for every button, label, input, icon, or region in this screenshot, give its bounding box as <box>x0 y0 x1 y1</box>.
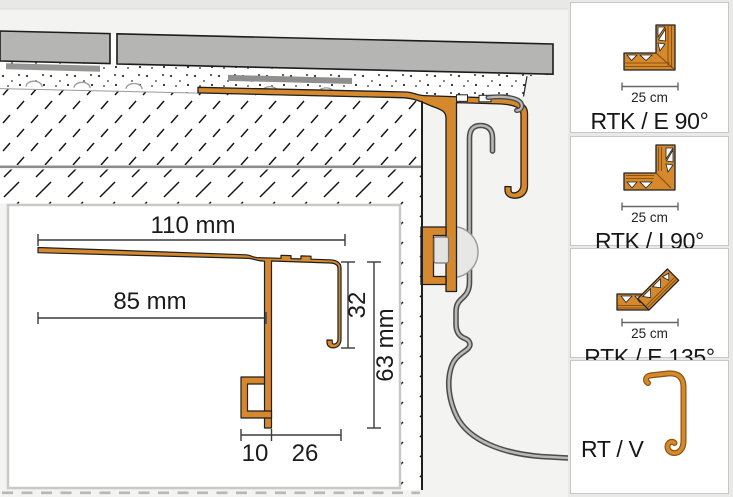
accessory-sidebar: 25 cm RTK / E 90° <box>568 0 733 497</box>
size-dimension: 25 cm <box>621 318 679 342</box>
detail-inset: 110 mm 85 mm 32 63 mm 10 26 <box>8 205 400 488</box>
accessory-label: RT / V <box>581 437 644 461</box>
screed-layer <box>0 89 422 165</box>
cross-section-diagram: 110 mm 85 mm 32 63 mm 10 26 <box>0 0 568 497</box>
top-strip-edge <box>0 9 568 10</box>
top-strip <box>0 0 568 9</box>
vertical-profile-icon <box>638 369 690 461</box>
dim-upper-width: 85 mm <box>113 288 186 315</box>
layer-divider <box>0 166 422 168</box>
size-label: 25 cm <box>631 327 668 342</box>
dim-overhang: 26 <box>292 440 319 467</box>
accessory-card-rt-v: RT / V <box>570 360 729 494</box>
dim-bracket-width: 10 <box>242 440 269 467</box>
dim-face-height: 32 <box>344 292 371 319</box>
accessory-card-rtk-e90: 25 cm RTK / E 90° <box>570 2 729 133</box>
size-dimension: 25 cm <box>621 202 679 226</box>
outside-corner-90-icon <box>619 22 681 80</box>
size-label: 25 cm <box>631 91 668 106</box>
size-label: 25 cm <box>631 211 668 226</box>
inside-corner-90-icon <box>619 142 681 200</box>
dim-top-width: 110 mm <box>151 212 236 239</box>
dim-total-height: 63 mm <box>372 308 399 381</box>
size-dimension: 25 cm <box>621 82 679 106</box>
accessory-card-rtk-e135: 25 cm RTK / E 135° <box>570 248 729 358</box>
bracket-screw <box>434 237 449 263</box>
outside-corner-135-icon <box>613 258 687 316</box>
accessory-label: RTK / E 90° <box>591 109 709 133</box>
accessory-card-rtk-i90: 25 cm RTK / I 90° <box>570 136 729 246</box>
page: 110 mm 85 mm 32 63 mm 10 26 <box>0 0 733 497</box>
